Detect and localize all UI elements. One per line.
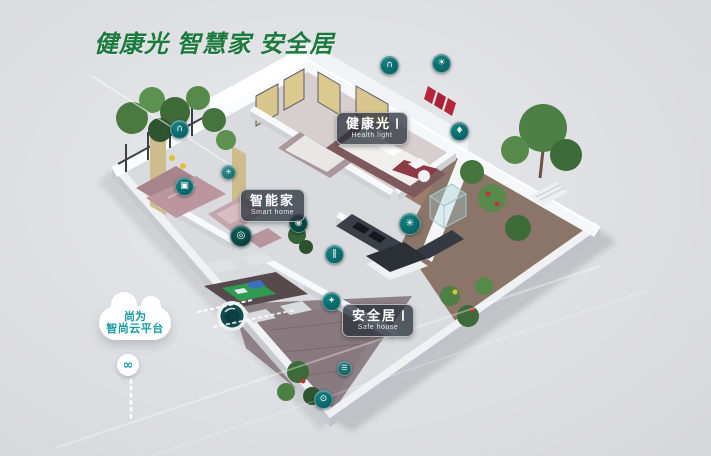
cloud-line1: 尚为 <box>124 311 146 323</box>
label-health-light: 健康光 Health light <box>336 112 408 145</box>
ceiling-light-icon: ☀ <box>432 54 451 73</box>
link-icon: ∞ <box>117 354 139 376</box>
label-health-light-zh: 健康光 <box>346 116 391 131</box>
label-smart-home-en: Smart home <box>251 208 294 217</box>
house-illustration <box>0 0 711 456</box>
label-health-light-en: Health light <box>351 131 392 140</box>
tv-icon: ▣ <box>175 177 194 196</box>
page-title: 健康光 智慧家 安全居 <box>94 24 334 59</box>
smart-hub-device <box>217 301 247 331</box>
label-safe-house-en: Safe house <box>358 323 398 332</box>
security-shield-icon: ✦ <box>322 292 341 311</box>
water-icon: ♦ <box>450 122 469 141</box>
door-lock-icon: ⊙ <box>314 390 333 409</box>
label-smart-home-zh: 智能家 <box>250 193 295 208</box>
cloud-line2: 智尚云平台 <box>106 323 164 336</box>
label-divider <box>396 118 398 129</box>
balcony-curtain-icon: ∩ <box>170 120 189 139</box>
balcony-light-icon: ☀ <box>221 165 236 180</box>
cloud-platform-badge: 尚为 智尚云平台 <box>99 306 171 340</box>
indoor-door-icon: ‖ <box>325 245 344 264</box>
sensor-icon: ☰ <box>337 361 352 376</box>
smart-home-promo: 健康光 智慧家 安全居 ∩ ▣ ☀ ◎ ◉ ‖ ∩ ☀ ✳ ♦ ✦ ☰ ⊙ 健康… <box>0 0 711 456</box>
kitchen-fan-icon: ✳ <box>399 213 421 235</box>
label-divider <box>402 310 404 321</box>
label-smart-home: 智能家 Smart home <box>240 189 305 222</box>
vacuum-robot-icon: ◎ <box>230 225 252 247</box>
bedroom-curtain-icon: ∩ <box>380 56 399 75</box>
label-safe-house: 安全居 Safe house <box>342 304 414 337</box>
label-safe-house-zh: 安全居 <box>352 308 397 323</box>
